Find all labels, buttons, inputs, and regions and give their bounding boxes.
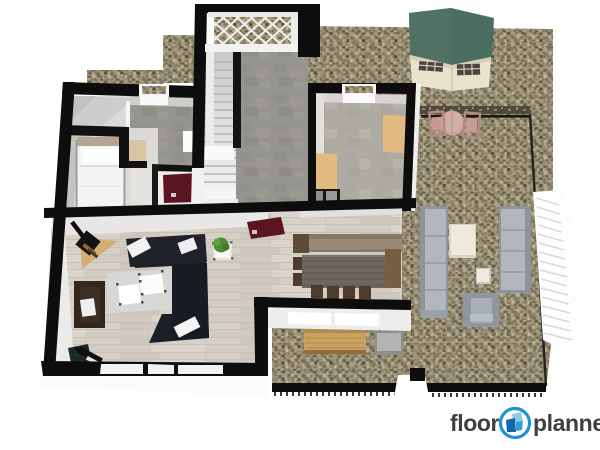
svg-text:floor: floor [450,410,500,436]
svg-text:planner: planner [533,410,600,436]
